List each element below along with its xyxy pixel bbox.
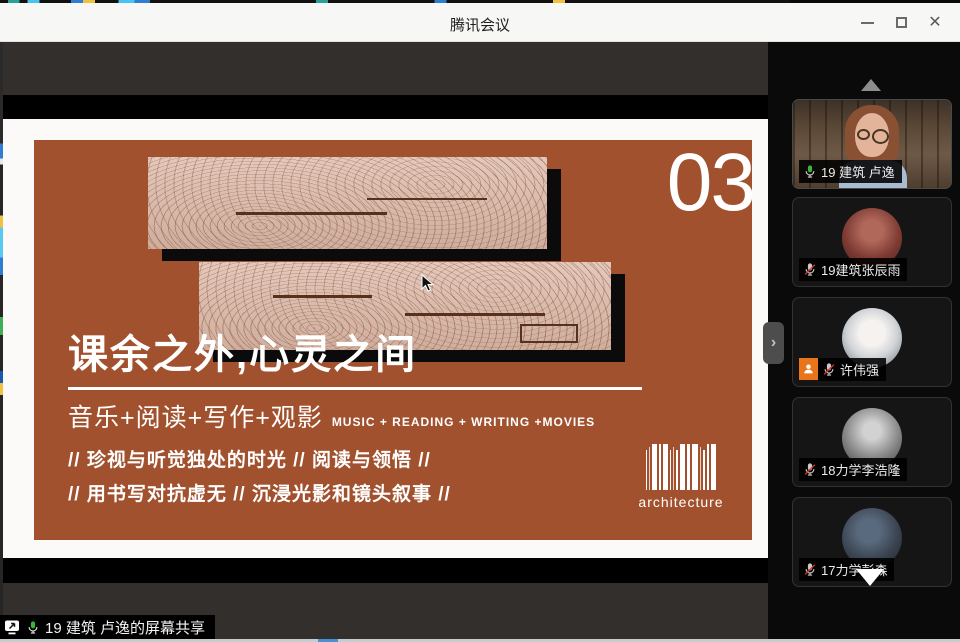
chevron-right-icon: › (771, 334, 776, 352)
slide: 03 课余之外,心灵之间 音乐+阅读+写作+观影 MUSIC + READING… (34, 140, 752, 540)
plan-wall-line (273, 295, 372, 298)
participant-tile[interactable]: 19 建筑 卢逸 (792, 99, 952, 189)
slide-page-number: 03 (667, 142, 752, 224)
panel-collapse-handle[interactable]: › (763, 322, 784, 364)
mic-muted-icon (803, 462, 817, 477)
status-text: 19 建筑 卢逸的屏幕共享 (45, 617, 205, 638)
slide-bullet-1: // 珍视与听觉独处的时光 // 阅读与领悟 // (68, 445, 431, 472)
mic-on-icon (803, 164, 817, 179)
participant-name-label: 18力学李浩隆 (799, 458, 907, 481)
window-title: 腾讯会议 (0, 14, 960, 35)
title-underline (68, 387, 642, 390)
mic-muted-icon (803, 262, 817, 277)
scroll-down-arrow[interactable] (856, 569, 884, 586)
mic-on-icon (26, 620, 40, 635)
scroll-up-arrow[interactable] (861, 79, 881, 91)
barcode-block: architecture (635, 444, 727, 510)
participant-name-label: 19建筑张辰雨 (799, 258, 907, 281)
participant-name: 19 建筑 卢逸 (821, 162, 895, 181)
participant-name: 18力学李浩隆 (821, 460, 900, 479)
video-person-glasses (857, 129, 870, 140)
subtitle-chinese: 音乐+阅读+写作+观影 (68, 398, 323, 434)
plan-wall-line (405, 313, 545, 316)
participant-name: 许伟强 (840, 360, 879, 379)
participant-name: 19建筑张辰雨 (821, 260, 900, 279)
plan-wall-line (367, 198, 487, 200)
share-letterbox-top (0, 42, 768, 95)
barcode-icon (635, 444, 727, 490)
architecture-plan-image-1 (148, 157, 547, 249)
share-black-bar-bottom (0, 558, 768, 583)
slide-title: 课余之外,心灵之间 (68, 322, 417, 380)
screen-share-status: 19 建筑 卢逸的屏幕共享 (0, 615, 215, 639)
close-button[interactable]: ✕ (918, 8, 952, 38)
subtitle-english: MUSIC + READING + WRITING +MOVIES (332, 415, 595, 429)
barcode-caption: architecture (635, 494, 727, 510)
slide-bullet-2: // 用书写对抗虚无 // 沉浸光影和镜头叙事 // (68, 479, 451, 506)
plan-room-outline (520, 324, 578, 343)
minimize-button[interactable] (850, 8, 884, 38)
participant-name-label: 许伟强 (818, 358, 886, 381)
screen-share-icon (4, 619, 21, 636)
slide-subtitle: 音乐+阅读+写作+观影 MUSIC + READING + WRITING +M… (68, 398, 595, 434)
plan-wall-line (236, 212, 388, 215)
share-black-bar-top (0, 95, 768, 119)
title-bar[interactable]: 腾讯会议 ✕ (0, 3, 960, 42)
maximize-button[interactable] (884, 8, 918, 38)
participant-tile[interactable]: 19建筑张辰雨 (792, 197, 952, 287)
mouse-cursor (421, 274, 434, 293)
participant-tile[interactable]: 18力学李浩隆 (792, 397, 952, 487)
close-icon: ✕ (928, 15, 941, 31)
participant-tile[interactable]: 许伟强 (792, 297, 952, 387)
window-controls: ✕ (850, 3, 952, 42)
mic-muted-icon (803, 562, 817, 577)
mic-muted-icon (822, 362, 836, 377)
minimize-icon (861, 22, 874, 24)
member-badge-icon (799, 358, 818, 380)
maximize-icon (896, 17, 907, 28)
participant-name-label: 19 建筑 卢逸 (799, 160, 902, 183)
meeting-window: 腾讯会议 ✕ 03 课余之外,心灵之间 音乐+阅读+写作+观影 MUSIC + … (0, 0, 960, 642)
